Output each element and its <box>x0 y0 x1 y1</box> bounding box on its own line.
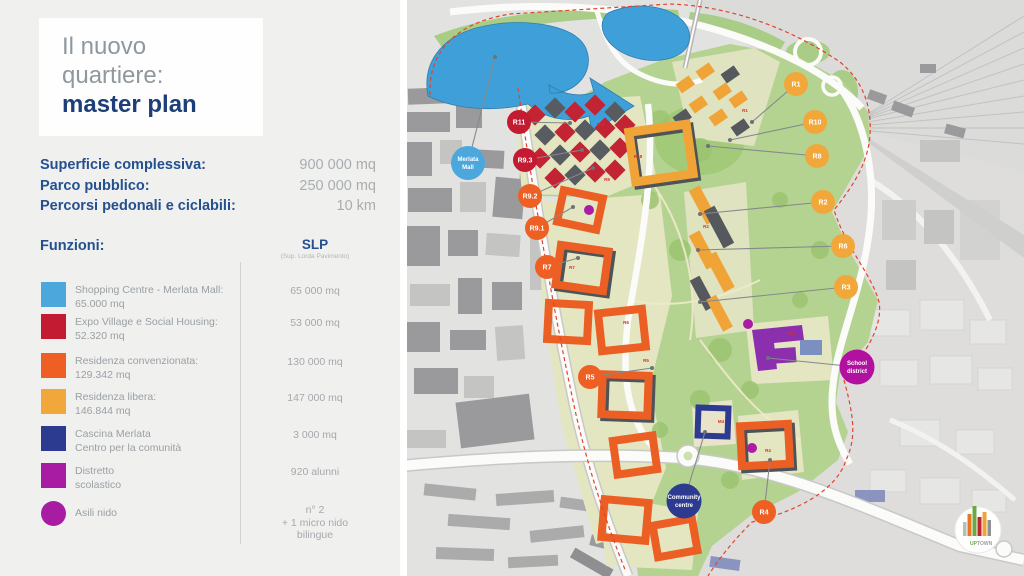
legend-swatch-cascina <box>41 426 66 451</box>
legend-swatch-libera <box>41 389 66 414</box>
map-marker-r7: R7 <box>535 255 559 279</box>
legend-value: 53 000 mq <box>255 317 375 330</box>
panel-map-gap <box>400 0 407 576</box>
svg-text:R9.1: R9.1 <box>530 226 545 233</box>
legend-swatch-shopping <box>41 282 66 307</box>
stat-value: 900 000 mq <box>299 155 376 176</box>
svg-text:R10: R10 <box>809 120 822 127</box>
map-marker-r9-2: R9.2 <box>518 184 542 208</box>
stat-label: Superficie complessiva: <box>40 155 206 176</box>
svg-text:R1: R1 <box>792 82 801 89</box>
stat-label: Percorsi pedonali e ciclabili: <box>40 196 236 217</box>
map-marker-r3: R3 <box>834 275 858 299</box>
svg-text:R2: R2 <box>819 200 828 207</box>
map-marker-merlata-mall: Merlata Mall <box>451 146 485 180</box>
master-plan-map: R11 R9 R18 R1 R2 R6 R7 R5 R4 M4 PS6 Merl… <box>400 0 1024 576</box>
legend-label: Residenza libera:146.844 mq <box>75 390 156 418</box>
svg-text:R6: R6 <box>623 320 629 325</box>
title-card: Il nuovo quartiere: master plan <box>39 18 263 136</box>
legend-value: 920 alunni <box>255 466 375 479</box>
stat-row: Superficie complessiva: 900 000 mq <box>40 155 376 176</box>
legend-label: Residenza convenzionata:129.342 mq <box>75 354 198 382</box>
svg-text:R1: R1 <box>742 108 748 113</box>
legend-row-cascina-merlata: Cascina MerlataCentro per la comunità 3 … <box>40 424 376 464</box>
legend-swatch-asili-nido <box>41 501 66 526</box>
title-line-3: master plan <box>62 90 263 119</box>
svg-text:School: School <box>847 361 867 367</box>
legend-row-distretto-scolastico: Distrettoscolastico 920 alunni <box>40 461 376 501</box>
svg-text:R5: R5 <box>643 358 649 363</box>
map-marker-community-centre: Community centre <box>667 484 702 519</box>
title-line-1: Il nuovo <box>62 32 263 61</box>
svg-text:Mall: Mall <box>462 165 474 171</box>
slp-header: SLP <box>255 237 375 252</box>
map-marker-r9-3: R9.3 <box>513 148 537 172</box>
svg-text:R8: R8 <box>813 154 822 161</box>
legend-swatch-convenzionata <box>41 353 66 378</box>
svg-text:R4: R4 <box>760 510 769 517</box>
legend-label: Cascina MerlataCentro per la comunità <box>75 427 181 455</box>
map-marker-r5: R5 <box>578 365 602 389</box>
map-marker-r2: R2 <box>811 190 835 214</box>
legend-row-asili-nido: Asili nido n° 2+ 1 micro nidobilingue <box>40 499 376 539</box>
svg-text:R7: R7 <box>543 265 552 272</box>
legend-label: Expo Village e Social Housing:52.320 mq <box>75 315 218 343</box>
svg-text:district: district <box>847 369 867 375</box>
stat-label: Parco pubblico: <box>40 176 150 197</box>
title-line-2: quartiere: <box>62 61 263 90</box>
info-panel: Il nuovo quartiere: master plan Superfic… <box>0 0 400 576</box>
legend-label: Asili nido <box>75 506 117 520</box>
master-plan-slide: Il nuovo quartiere: master plan Superfic… <box>0 0 1024 576</box>
svg-text:PS6: PS6 <box>787 331 796 336</box>
svg-text:R11: R11 <box>597 122 606 127</box>
map-marker-r6: R6 <box>831 234 855 258</box>
legend-label: Shopping Centre - Merlata Mall:65.000 mq <box>75 283 223 311</box>
svg-text:R7: R7 <box>569 265 575 270</box>
stat-row: Percorsi pedonali e ciclabili: 10 km <box>40 196 376 217</box>
map-area: R11 R9 R18 R1 R2 R6 R7 R5 R4 M4 PS6 Merl… <box>400 0 1024 576</box>
uptown-logo-text-town: TOWN <box>977 541 993 547</box>
stat-value: 250 000 mq <box>299 176 376 197</box>
svg-text:R18: R18 <box>634 154 643 159</box>
map-marker-school-district: School district <box>840 350 875 385</box>
legend-row-expo-village: Expo Village e Social Housing:52.320 mq … <box>40 312 376 352</box>
map-marker-r8: R8 <box>805 144 829 168</box>
legend-value: n° 2+ 1 micro nidobilingue <box>255 504 375 542</box>
svg-text:R9.2: R9.2 <box>523 194 538 201</box>
legend-swatch-distretto <box>41 463 66 488</box>
functions-header: Funzioni: <box>40 238 104 254</box>
svg-text:M4: M4 <box>718 419 725 424</box>
map-marker-r9-1: R9.1 <box>525 216 549 240</box>
svg-text:R2: R2 <box>703 224 709 229</box>
stat-value: 10 km <box>337 196 377 217</box>
map-marker-r11: R11 <box>507 110 531 134</box>
legend-row-residenza-convenzionata: Residenza convenzionata:129.342 mq 130 0… <box>40 351 376 391</box>
svg-text:R9: R9 <box>604 177 610 182</box>
legend-row-residenza-libera: Residenza libera:146.844 mq 147 000 mq <box>40 387 376 427</box>
map-marker-r10: R10 <box>803 110 827 134</box>
uptown-logo: UP TOWN <box>955 506 1001 553</box>
slp-subheader: (Sup. Lorda Pavimento) <box>255 253 375 260</box>
svg-text:R6: R6 <box>839 244 848 251</box>
legend-value: 3 000 mq <box>255 429 375 442</box>
map-marker-r1: R1 <box>784 72 808 96</box>
map-marker-r4: R4 <box>752 500 776 524</box>
legend-label: Distrettoscolastico <box>75 464 121 492</box>
svg-text:Community: Community <box>668 495 702 501</box>
svg-text:R4: R4 <box>765 448 771 453</box>
legend-value: 147 000 mq <box>255 392 375 405</box>
svg-text:R5: R5 <box>586 375 595 382</box>
svg-text:R9.3: R9.3 <box>518 158 533 165</box>
legend-value: 130 000 mq <box>255 356 375 369</box>
legend-swatch-expo <box>41 314 66 339</box>
svg-text:Merlata: Merlata <box>457 157 479 163</box>
svg-text:R11: R11 <box>513 120 526 127</box>
svg-text:centre: centre <box>675 503 694 509</box>
stat-row: Parco pubblico: 250 000 mq <box>40 176 376 197</box>
legend-value: 65 000 mq <box>255 285 375 298</box>
slp-header-block: SLP (Sup. Lorda Pavimento) <box>255 237 375 260</box>
key-stats: Superficie complessiva: 900 000 mq Parco… <box>40 155 376 217</box>
svg-text:R3: R3 <box>842 285 851 292</box>
